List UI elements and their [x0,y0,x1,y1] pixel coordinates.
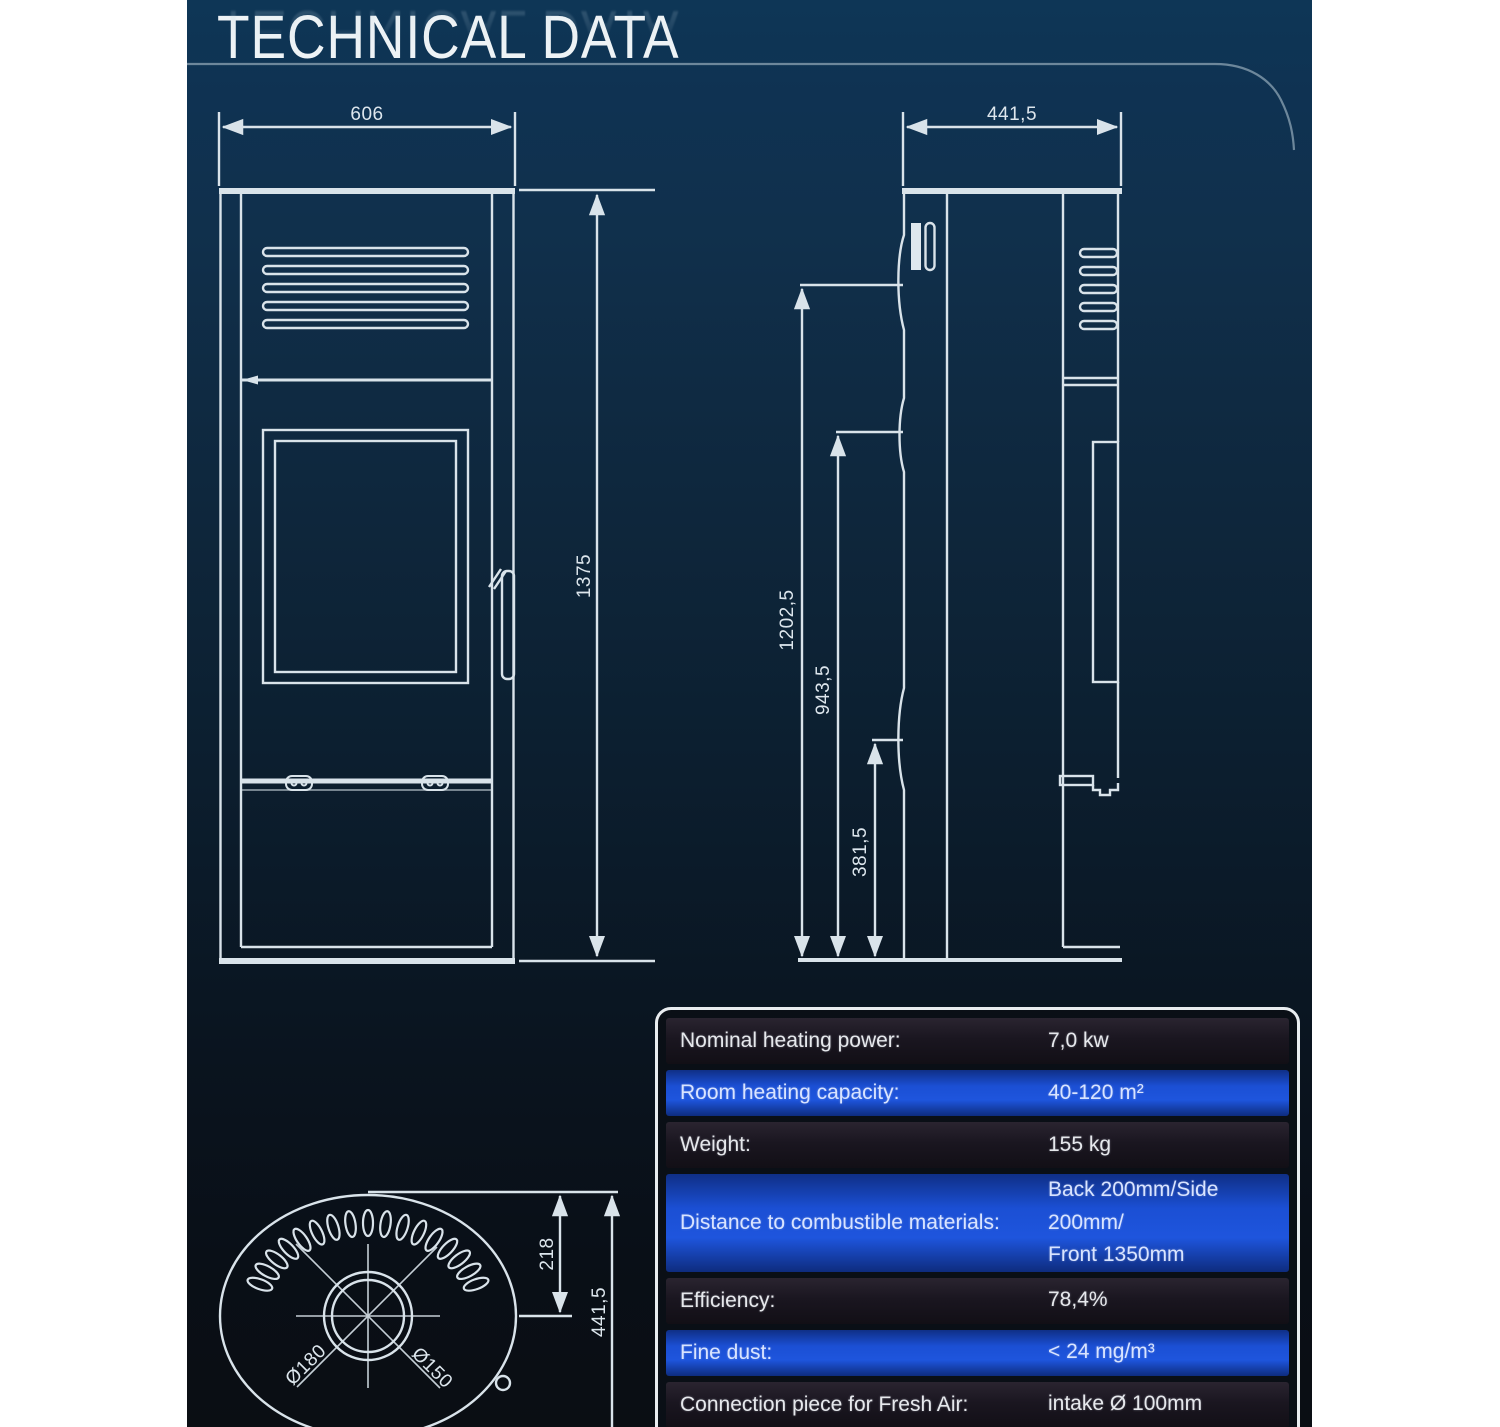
spec-value: 40-120 m² [1048,1077,1144,1110]
side-depth-dim-label: 441,5 [987,104,1037,125]
spec-label: Nominal heating power: [666,1029,1048,1053]
spec-value: 7,0 kw [1048,1025,1109,1058]
spec-table: Nominal heating power: 7,0 kw Room heati… [655,1007,1300,1427]
front-height-dim-label: 1375 [574,554,595,598]
spec-label: Room heating capacity: [666,1081,1048,1105]
top-flue-offset-dim-label: 218 [537,1237,558,1270]
front-view-drawing [219,112,655,961]
spec-value-line2: Front 1350mm [1048,1239,1289,1272]
front-width-dim-label: 606 [350,104,383,125]
side-low-height-dim-label: 381,5 [850,827,871,877]
top-fresh-air-stub [496,1376,510,1390]
spec-row-efficiency: Efficiency: 78,4% [666,1278,1289,1324]
spec-label: Distance to combustible materials: [666,1211,1048,1235]
front-door-glass [263,430,468,683]
spec-row-fine-dust: Fine dust: < 24 mg/m³ [666,1330,1289,1376]
technical-data-sheet: TECHNICAL DATA TECHNICAL DATA [0,0,1500,1427]
spec-row-connection-piece-fresh-air: Connection piece for Fresh Air: intake Ø… [666,1382,1289,1427]
top-view-drawing [220,1192,618,1427]
content-panel: TECHNICAL DATA TECHNICAL DATA [187,0,1312,1427]
side-flue-bracket [911,223,935,270]
spec-value-line1: Back 200mm/Side 200mm/ [1048,1174,1289,1239]
spec-row-room-heating-capacity: Room heating capacity: 40-120 m² [666,1070,1289,1116]
side-latch [1060,776,1118,795]
front-vent-slats [263,248,468,328]
spec-value: Back 200mm/Side 200mm/ Front 1350mm [1048,1174,1289,1272]
spec-label: Fine dust: [666,1341,1048,1365]
spec-label: Connection piece for Fresh Air: [666,1393,1048,1417]
top-flue-inner-diameter-label: Ø150 [407,1344,456,1393]
spec-row-nominal-heating-power: Nominal heating power: 7,0 kw [666,1018,1289,1064]
spec-label: Efficiency: [666,1289,1048,1313]
spec-row-weight: Weight: 155 kg [666,1122,1289,1168]
spec-value: 155 kg [1048,1129,1111,1162]
side-vent-slats [1080,249,1117,329]
side-view-drawing [798,112,1122,960]
side-door-frame [1093,442,1118,682]
side-total-height-dim-label: 1202,5 [777,589,798,650]
spec-label: Weight: [666,1133,1048,1157]
top-flue-outer-diameter-label: Ø180 [282,1341,331,1390]
spec-row-distance-to-combustible-materials: Distance to combustible materials: Back … [666,1174,1289,1272]
spec-value: intake Ø 100mm [1048,1388,1202,1421]
top-depth-dim-label: 441,5 [589,1287,610,1337]
spec-value: < 24 mg/m³ [1048,1336,1155,1369]
spec-value: 78,4% [1048,1284,1108,1317]
side-mid-height-dim-label: 943,5 [813,665,834,715]
